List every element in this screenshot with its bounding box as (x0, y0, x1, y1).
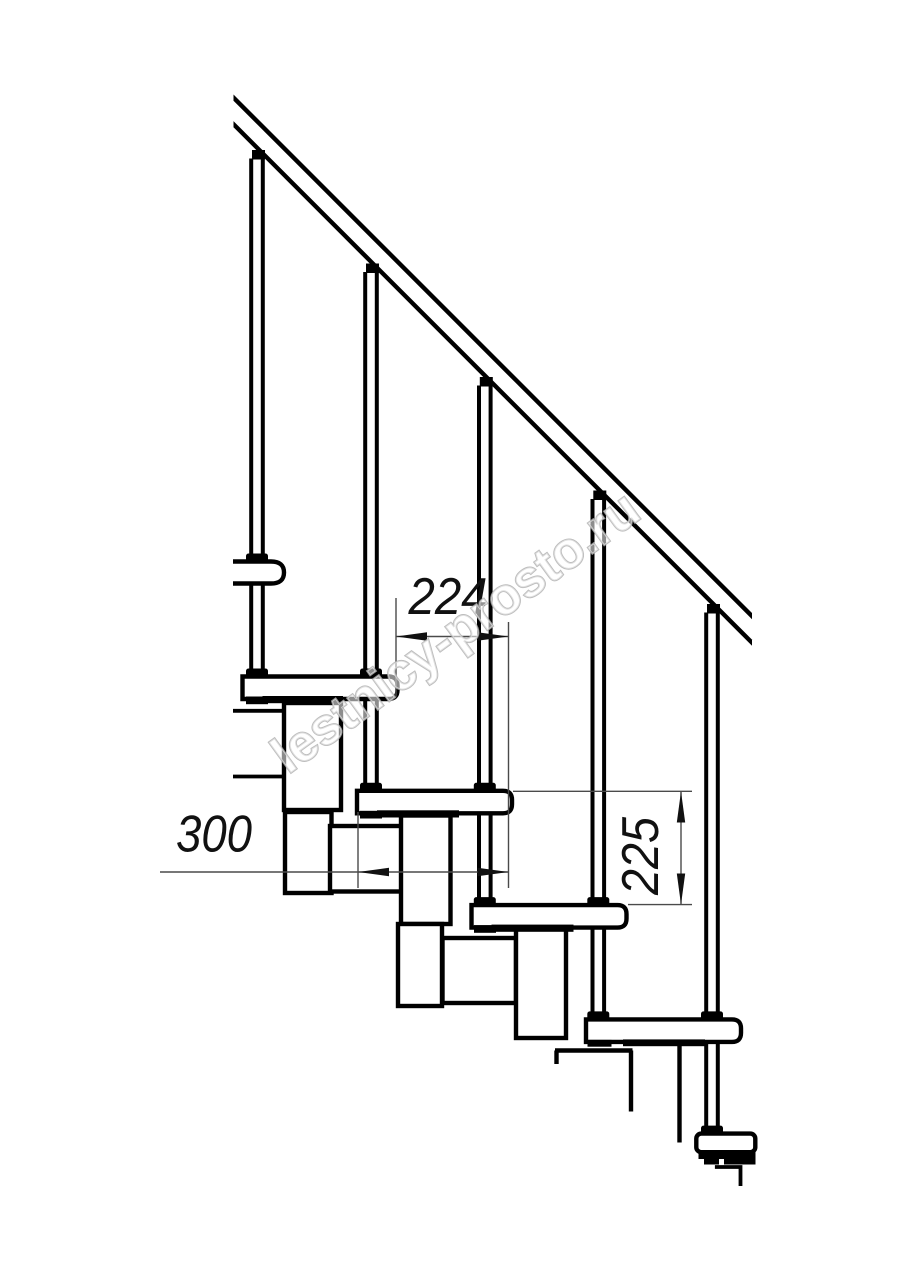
svg-text:225: 225 (612, 816, 670, 896)
svg-text:300: 300 (176, 806, 252, 864)
